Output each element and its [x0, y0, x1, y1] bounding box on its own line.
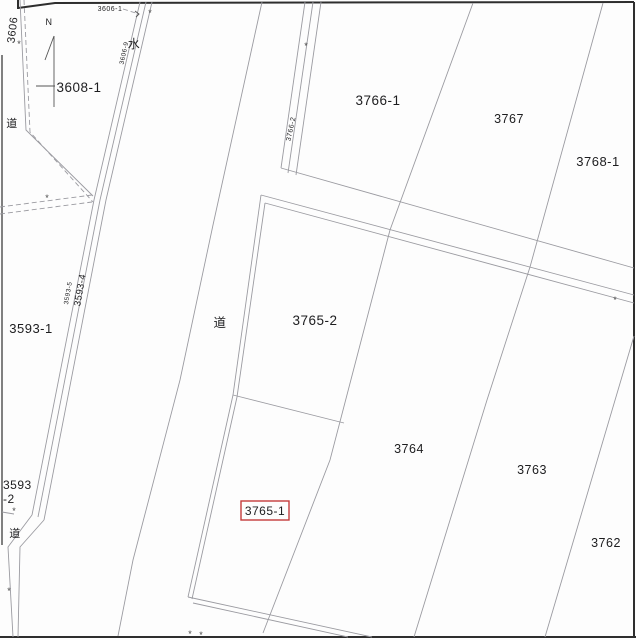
parcel-label-3606-1: 3606-1	[98, 6, 123, 13]
parcel-boundary-dashed	[0, 202, 92, 214]
parcel-boundary	[192, 203, 265, 599]
main-road-right-edge	[281, 2, 305, 168]
parcel-label-3608-1: 3608-1	[56, 80, 101, 95]
road-label-main: 道	[213, 316, 226, 330]
road-label-northwest: 道	[6, 116, 18, 130]
parcel-label-3765-2: 3765-2	[292, 313, 337, 328]
survey-mark-icon: *	[45, 193, 49, 203]
north-label: N	[46, 17, 53, 27]
parcel-boundary	[296, 2, 321, 175]
parcel-label-3767: 3767	[494, 112, 524, 126]
survey-mark-icon: *	[613, 295, 617, 305]
main-road-left-edge	[118, 2, 262, 636]
parcel-label-3763: 3763	[517, 463, 547, 477]
cadastral-map: * * * * * * * * * 3606 3606-1 3606-9 水 N…	[0, 0, 636, 640]
parcel-label-3766-2: 3766-2	[285, 116, 297, 142]
parcel-boundary	[545, 336, 634, 637]
parcel-boundary	[18, 520, 44, 637]
survey-mark-icon: *	[7, 586, 11, 596]
parcel-boundary	[188, 195, 261, 597]
parcel-boundary	[193, 603, 348, 637]
north-arrow	[45, 36, 54, 60]
parcel-label-3766-1: 3766-1	[355, 93, 400, 108]
parcel-label-3768-1: 3768-1	[576, 154, 619, 169]
parcel-label-3762: 3762	[591, 536, 621, 550]
survey-mark-icon: *	[17, 39, 21, 49]
parcel-label-3765-1: 3765-1	[245, 504, 285, 518]
parcel-boundary	[414, 3, 603, 637]
parcel-label-3593-2-line1: 3593	[3, 478, 32, 492]
survey-mark-icon: *	[199, 630, 203, 640]
water-label: 水	[128, 37, 141, 51]
survey-mark-icon: *	[148, 8, 152, 18]
parcel-boundary	[20, 0, 93, 196]
parcel-label-3593-2-line2: -2	[3, 492, 15, 506]
cross-road-upper-edge	[281, 168, 634, 268]
cross-road-lower-edge-inner	[265, 203, 634, 303]
parcel-boundary	[188, 597, 372, 637]
water-channel-line	[32, 2, 140, 515]
cadastral-map-canvas: * * * * * * * * * 3606 3606-1 3606-9 水 N…	[0, 0, 636, 640]
parcel-boundary-dashed	[24, 0, 93, 202]
parcel-boundary	[233, 395, 344, 423]
survey-mark-icon: *	[12, 506, 16, 516]
survey-mark-icon: *	[188, 629, 192, 639]
parcel-label-3593-1: 3593-1	[9, 321, 52, 336]
survey-mark-icon: *	[304, 41, 308, 51]
label-leader-line	[123, 9, 139, 14]
parcel-boundary	[288, 2, 313, 173]
parcel-label-3764: 3764	[394, 442, 424, 456]
cross-road-lower-edge	[261, 195, 634, 295]
road-label-southwest: 道	[9, 526, 21, 540]
